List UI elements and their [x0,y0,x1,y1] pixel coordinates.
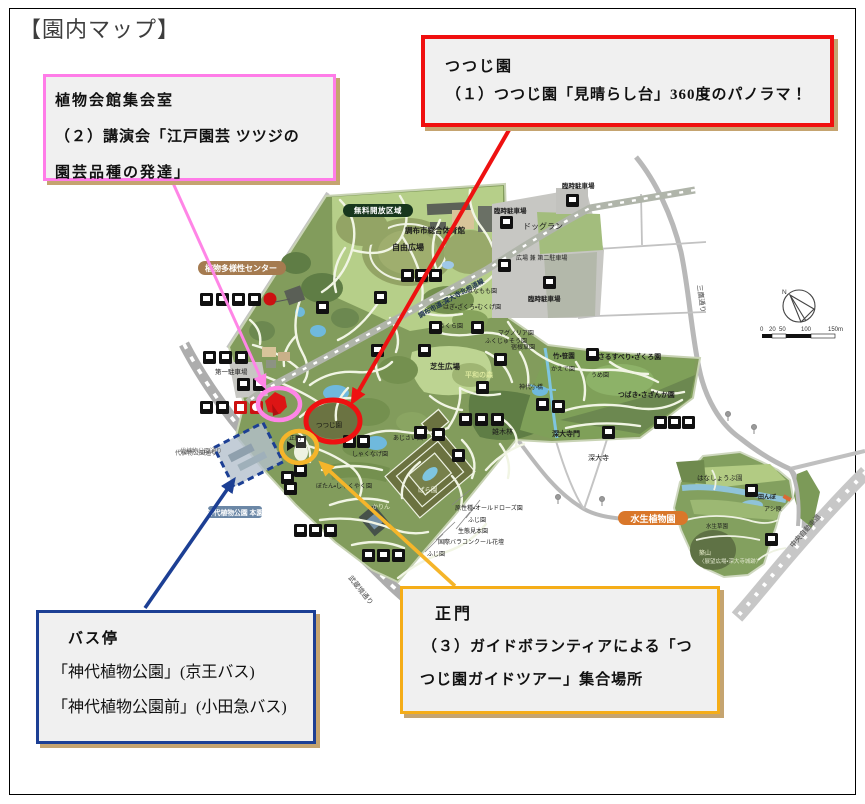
svg-text:平和の森: 平和の森 [465,370,494,379]
svg-text:調布市総合体育館: 調布市総合体育館 [405,225,465,235]
svg-text:つつじ園: つつじ園 [316,421,342,429]
svg-text:50: 50 [779,327,786,333]
svg-text:田んぼ: 田んぼ [758,493,777,501]
svg-text:竹・笹園: 竹・笹園 [552,351,575,360]
svg-text:深大寺: 深大寺 [588,453,609,462]
svg-text:ふじ園: ふじ園 [468,517,486,524]
svg-text:雑木林: 雑木林 [492,427,513,436]
svg-text:植物多様性センター: 植物多様性センター [205,263,277,273]
svg-text:さくら園: さくら園 [439,323,463,330]
svg-text:築山: 築山 [699,549,711,557]
svg-text:第一駐車場: 第一駐車場 [215,367,248,376]
svg-text:100: 100 [801,327,812,333]
svg-text:水生植物園: 水生植物園 [629,513,675,524]
svg-text:ふくじゅそう園: ふくじゅそう園 [485,338,527,345]
svg-text:三鷹通り: 三鷹通り [695,284,708,313]
svg-text:しゃくなげ園: しゃくなげ園 [352,450,388,458]
svg-text:無料開放区域: 無料開放区域 [354,205,402,215]
svg-text:生態見本園: 生態見本園 [458,527,488,535]
svg-text:マグノリア園: マグノリア園 [498,329,534,337]
svg-text:深大寺門: 深大寺門 [552,429,580,438]
svg-text:0: 0 [760,327,764,333]
svg-text:水生草園: 水生草園 [706,522,729,530]
svg-text:うめ園: うめ園 [591,372,609,379]
svg-text:臨時駐車場: 臨時駐車場 [494,206,527,215]
svg-text:N: N [782,289,787,296]
svg-text:20: 20 [769,327,776,333]
svg-text:ドッグラン: ドッグラン [523,221,563,231]
svg-text:150m: 150m [828,327,843,333]
svg-text:臨時駐車場: 臨時駐車場 [528,294,561,303]
svg-text:広場 兼 第二駐車場: 広場 兼 第二駐車場 [516,254,567,262]
svg-text:宿根草園: 宿根草園 [511,343,535,351]
svg-text:原性種・オールドローズ園: 原性種・オールドローズ園 [455,504,523,512]
svg-text:はなしょうぶ園: はなしょうぶ園 [697,474,743,482]
svg-text:つばき・さざんか園: つばき・さざんか園 [618,390,675,399]
svg-text:臨時駐車場: 臨時駐車場 [562,181,595,190]
svg-text:神代小橋: 神代小橋 [519,383,543,391]
svg-text:〈展望広場・深大寺城跡〉: 〈展望広場・深大寺城跡〉 [699,557,761,565]
svg-text:あじさい園: あじさい園 [393,435,423,442]
svg-text:さるすべり・ざくろ園: さるすべり・ざくろ園 [598,352,661,361]
svg-text:武蔵境通り: 武蔵境通り [346,574,375,607]
svg-text:ふじ園: ふじ園 [427,551,445,558]
svg-text:かえで園: かえで園 [551,366,575,373]
svg-text:自由広場: 自由広場 [392,242,424,252]
svg-text:正門: 正門 [289,435,301,442]
svg-text:国際バラコンクール花壇: 国際バラコンクール花壇 [438,538,504,546]
svg-text:アシ原: アシ原 [764,506,782,513]
svg-text:芝生広場: 芝生広場 [430,361,460,371]
svg-text:ばら園: ばら園 [418,485,438,494]
svg-text:代植物公園通り: 代植物公園通り [180,447,222,455]
svg-text:はぎ・ざくろ・むくげ園: はぎ・ざくろ・むくげ園 [443,303,501,311]
